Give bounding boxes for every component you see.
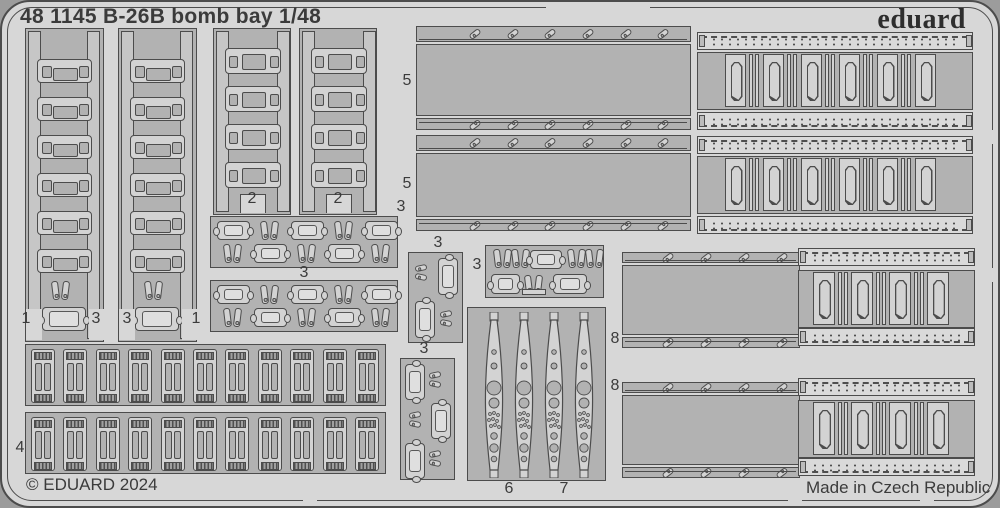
turnbuckle-part (290, 349, 314, 403)
hinge-strip-part (416, 118, 691, 130)
hook-hole-icon (660, 142, 665, 147)
knurl-band (99, 394, 117, 402)
bracket-inner (442, 265, 454, 288)
slot-cutout (336, 431, 343, 459)
rack-bracket-part (37, 249, 92, 273)
hinge-hook-icon (429, 380, 442, 388)
buckle-bracket-part (365, 285, 398, 304)
door-slat-part (889, 272, 911, 325)
bracket-inner (419, 308, 431, 331)
cutout (328, 130, 352, 146)
slat-bar-part (749, 158, 753, 211)
hook-hole-icon (346, 234, 350, 238)
strap-hook-icon (61, 281, 70, 301)
knurl-band (358, 352, 376, 360)
end-cap (966, 115, 972, 127)
buckle-bracket-part (438, 258, 458, 295)
cutout (315, 94, 324, 106)
strap-hook-icon (260, 221, 269, 241)
dash-line (701, 125, 968, 127)
door-slat-part (927, 272, 949, 325)
dash-line (802, 471, 970, 473)
hinge-hook-icon (661, 252, 674, 264)
strap-hook-icon (307, 308, 316, 328)
knurl-band (34, 352, 52, 360)
octagon-inner (770, 167, 779, 203)
rack-bracket-part (225, 124, 281, 150)
slot-cutout (359, 431, 366, 459)
buckle-bracket-part (42, 307, 86, 331)
knurl-band (164, 352, 182, 360)
knurl-band (326, 394, 344, 402)
cutout (229, 94, 238, 106)
hook-hole-icon (300, 257, 304, 261)
part-number-blade-7: 7 (560, 481, 569, 497)
buckle-bracket-part (530, 250, 562, 269)
knurl-band (164, 394, 182, 402)
octagon-cutout (857, 410, 869, 449)
shackle-strip-part-3 (210, 216, 398, 268)
dash-line (701, 140, 968, 142)
dash-line (701, 36, 968, 38)
knurl-band (261, 352, 279, 360)
edge-line (625, 390, 796, 391)
slot-cutout (238, 363, 245, 391)
cutout (135, 66, 145, 78)
hook-hole-icon (309, 321, 313, 325)
dash-line (802, 341, 970, 343)
hook-hole-icon (431, 382, 435, 386)
cutout (42, 256, 52, 268)
cutout (315, 132, 324, 144)
slot-cutout (174, 363, 181, 391)
frame-gap (546, 6, 650, 12)
knurl-band (66, 352, 84, 360)
made-in-text: Made in Czech Republic (806, 478, 990, 498)
rack-bracket-part (225, 162, 281, 188)
slot-cutout (368, 431, 375, 459)
strap-hook-icon (585, 249, 594, 269)
door-slat-part (877, 158, 898, 211)
octagon-inner (922, 167, 931, 203)
hook-hole-icon (417, 267, 421, 271)
door-slat-part (725, 158, 746, 211)
octagon-cutout (731, 166, 743, 205)
rivet-strip-part (697, 136, 973, 154)
cutout (172, 256, 182, 268)
strap-hook-icon (334, 221, 343, 241)
octagon-inner (808, 167, 817, 203)
edge-line (625, 341, 796, 342)
hook-hole-icon (585, 33, 590, 38)
knurl-band (164, 462, 182, 470)
slot-cutout (294, 431, 301, 459)
slot-cutout (336, 363, 343, 391)
part-number-plate-5-lower: 5 (403, 176, 412, 192)
hinge-hook-icon (440, 310, 453, 318)
slat-bar-part (882, 402, 886, 455)
cutout (42, 104, 52, 116)
turnbuckle-part (128, 349, 152, 403)
octagon-inner (732, 167, 741, 203)
hook-hole-icon (374, 321, 378, 325)
frame-gap (990, 268, 997, 282)
hook-hole-icon (235, 257, 239, 261)
turnbuckle-part (161, 349, 185, 403)
hinge-hook-icon (661, 467, 674, 479)
turnbuckle-part (258, 349, 282, 403)
buckle-bracket-part (405, 364, 425, 400)
hook-hole-icon (263, 298, 267, 302)
slat-bar-part (793, 54, 797, 107)
part-number-hook-3-left: 3 (92, 311, 101, 327)
hook-hole-icon (431, 374, 435, 378)
hinge-hook-icon (737, 252, 750, 264)
hook-hole-icon (337, 298, 341, 302)
buckle-bracket-part (328, 308, 361, 327)
end-cap (968, 381, 974, 393)
bulkhead-blade-part (511, 312, 537, 478)
turnbuckle-part (225, 417, 249, 471)
hinge-hook-icon (699, 252, 712, 264)
shackle-cluster-part-3 (408, 252, 463, 343)
slot-cutout (197, 431, 204, 459)
part-number-strip-3-upper: 3 (397, 199, 406, 215)
frame-gap (303, 497, 317, 503)
strap-hook-icon (270, 285, 279, 305)
slat-bar-part (907, 54, 911, 107)
cutout (146, 220, 171, 233)
rivet-dots (811, 383, 962, 392)
turnbuckle-part (225, 349, 249, 403)
octagon-inner (884, 63, 893, 99)
dash-line (802, 252, 970, 254)
end-cap (968, 461, 974, 473)
bracket-inner (142, 311, 172, 327)
hook-hole-icon (156, 294, 160, 298)
rack-bracket-part (311, 124, 367, 150)
cutout (172, 66, 182, 78)
door-slat-part (839, 158, 860, 211)
hook-hole-icon (431, 453, 435, 457)
bulkhead-blade-part (481, 312, 507, 478)
edge-line (419, 39, 687, 40)
cutout (270, 56, 279, 68)
slat-bar-part (876, 402, 880, 455)
door-slat-part (801, 158, 822, 211)
cutout (172, 142, 182, 154)
hinge-hook-icon (699, 382, 712, 394)
end-cap (800, 331, 806, 343)
rivet-strip-part (697, 112, 973, 130)
knurl-band (228, 394, 246, 402)
strap-hook-icon (595, 249, 604, 269)
cutout (270, 94, 279, 106)
cutout (53, 144, 78, 157)
octagon-cutout (895, 410, 907, 449)
slot-cutout (100, 363, 107, 391)
knurl-band (131, 352, 149, 360)
slot-cutout (229, 431, 236, 459)
door-slat-part (801, 54, 822, 107)
octagon-inner (934, 411, 943, 447)
octagon-cutout (933, 410, 945, 449)
slat-bar-part (825, 158, 829, 211)
slat-bar-part (838, 402, 842, 455)
hook-hole-icon (300, 321, 304, 325)
knurl-band (66, 394, 84, 402)
buckle-bracket-part (553, 274, 587, 294)
hook-hole-icon (309, 257, 313, 261)
hinge-hook-icon (737, 337, 750, 349)
door-slat-part (889, 402, 911, 455)
hook-hole-icon (431, 461, 435, 465)
cutout (53, 258, 78, 271)
slat-bar-part (755, 54, 759, 107)
cutout (135, 142, 145, 154)
knurl-band (326, 420, 344, 428)
part-number-clips-4: 4 (16, 440, 25, 456)
end-cap (968, 331, 974, 343)
slot-cutout (165, 363, 172, 391)
hook-hole-icon (147, 294, 151, 298)
bracket-inner (372, 289, 391, 300)
door-panel-blank (622, 265, 800, 335)
end-cap (699, 139, 705, 151)
door-slat-panel (697, 156, 973, 214)
rack-bracket-part (37, 97, 92, 121)
knurl-band (228, 462, 246, 470)
slat-bar-part (869, 54, 873, 107)
end-cap (968, 251, 974, 263)
part-number-rack-1-left: 1 (22, 311, 31, 327)
hinge-hook-icon (415, 273, 428, 281)
edge-line (419, 122, 687, 123)
hinge-hook-icon (429, 450, 442, 458)
cutout (229, 132, 238, 144)
part-number-door-8-upper: 8 (611, 331, 620, 347)
strap-hook-icon (381, 244, 390, 264)
end-cap (966, 139, 972, 151)
bracket-inner (298, 225, 317, 236)
hook-hole-icon (510, 142, 515, 147)
hook-hole-icon (472, 33, 477, 38)
bracket-inner (537, 254, 555, 265)
knurl-band (261, 394, 279, 402)
strap-hook-icon (297, 308, 306, 328)
rivet-strip-part (697, 216, 973, 234)
cutout (172, 218, 182, 230)
bulkhead-blade-part (571, 312, 597, 478)
octagon-inner (820, 411, 829, 447)
frame-gap (990, 130, 997, 144)
end-cap (699, 219, 705, 231)
octagon-inner (770, 63, 779, 99)
part-number-rack-2-right: 2 (334, 191, 343, 207)
slot-cutout (303, 431, 310, 459)
knurl-band (131, 394, 149, 402)
buckle-bracket-part (415, 301, 435, 338)
hinge-strip-part (622, 252, 800, 263)
part-number-rack-2-left: 2 (248, 191, 257, 207)
turnbuckle-part (96, 349, 120, 403)
hook-base-part (522, 289, 546, 295)
octagon-inner (922, 63, 931, 99)
hook-hole-icon (374, 257, 378, 261)
door-slat-part (813, 272, 835, 325)
rack-bracket-part (311, 48, 367, 74)
octagon-inner (934, 281, 943, 317)
strap-hook-icon (344, 285, 353, 305)
cutout (42, 218, 52, 230)
strap-hook-icon (51, 281, 60, 301)
hook-hole-icon (417, 275, 421, 279)
cutout (135, 180, 145, 192)
slot-cutout (206, 363, 213, 391)
slot-cutout (262, 431, 269, 459)
slot-cutout (141, 431, 148, 459)
dash-line (802, 382, 970, 384)
knurl-band (99, 462, 117, 470)
hook-hole-icon (623, 142, 628, 147)
knurl-band (326, 462, 344, 470)
knurl-band (358, 462, 376, 470)
cutout (242, 130, 266, 146)
rack-bracket-part (37, 211, 92, 235)
hinge-hook-icon (699, 337, 712, 349)
hook-hole-icon (442, 321, 446, 325)
knurl-band (293, 462, 311, 470)
hook-hole-icon (383, 321, 387, 325)
cutout (172, 104, 182, 116)
knurl-band (34, 462, 52, 470)
hook-hole-icon (496, 262, 500, 266)
dash-line (701, 229, 968, 231)
knurl-band (99, 420, 117, 428)
knurl-band (293, 352, 311, 360)
turnbuckle-part (63, 349, 87, 403)
slot-cutout (67, 363, 74, 391)
hook-hole-icon (660, 33, 665, 38)
buckle-bracket-part (291, 221, 324, 240)
rack-bracket-part (37, 59, 92, 83)
end-cap (800, 381, 806, 393)
knurl-band (196, 352, 214, 360)
turnbuckle-part (290, 417, 314, 471)
slat-bar-part (749, 54, 753, 107)
end-cap (800, 461, 806, 473)
cutout (42, 142, 52, 154)
frame-gap (788, 497, 802, 503)
slat-bar-part (914, 272, 918, 325)
turnbuckle-part (31, 349, 55, 403)
knurl-band (261, 462, 279, 470)
turnbuckle-part (161, 417, 185, 471)
cutout (328, 92, 352, 108)
cutout (356, 170, 365, 182)
knurl-band (358, 394, 376, 402)
part-number-door-8-lower: 8 (611, 378, 620, 394)
cutout (146, 68, 171, 81)
hook-hole-icon (547, 33, 552, 38)
cutout (146, 144, 171, 157)
slat-bar-part (920, 402, 924, 455)
cutout (315, 56, 324, 68)
slot-cutout (327, 363, 334, 391)
slot-cutout (141, 363, 148, 391)
strap-hook-icon (223, 244, 232, 264)
blade-svg (481, 312, 507, 478)
octagon-inner (858, 281, 867, 317)
bracket-inner (435, 410, 447, 432)
pe-fret-sheet: 551331223333346788 48 1145 B-26B bomb ba… (0, 0, 1000, 508)
strap-hook-icon (270, 221, 279, 241)
octagon-cutout (895, 280, 907, 319)
hook-hole-icon (588, 262, 592, 266)
knurl-band (131, 420, 149, 428)
hook-hole-icon (272, 234, 276, 238)
edge-line (419, 223, 687, 224)
slot-cutout (76, 431, 83, 459)
door-slat-part (877, 54, 898, 107)
copyright-text: © EDUARD 2024 (26, 475, 158, 495)
cutout (79, 142, 89, 154)
slot-cutout (294, 363, 301, 391)
strap-hook-icon (344, 221, 353, 241)
end-cap (966, 219, 972, 231)
hinge-hook-icon (661, 337, 674, 349)
cutout (229, 56, 238, 68)
cutout (53, 106, 78, 119)
octagon-cutout (845, 62, 857, 101)
hook-hole-icon (63, 294, 67, 298)
knurl-band (164, 420, 182, 428)
cutout (172, 180, 182, 192)
part-number-cluster-3-b: 3 (473, 257, 482, 273)
slot-cutout (368, 363, 375, 391)
octagon-cutout (883, 62, 895, 101)
turnbuckle-part (31, 417, 55, 471)
rivet-strip-part (798, 328, 975, 346)
knurl-band (196, 394, 214, 402)
hook-hole-icon (472, 142, 477, 147)
rack-bracket-part (130, 59, 185, 83)
slat-bar-part (793, 158, 797, 211)
strap-hook-icon (233, 308, 242, 328)
slot-cutout (359, 363, 366, 391)
cutout (328, 54, 352, 70)
door-slat-part (725, 54, 746, 107)
hook-hole-icon (623, 33, 628, 38)
strap-hook-icon (567, 249, 576, 269)
slat-bar-part (863, 158, 867, 211)
slat-bar-part (831, 54, 835, 107)
slot-cutout (67, 431, 74, 459)
hinge-hook-icon (429, 371, 442, 379)
slat-bar-part (920, 272, 924, 325)
cutout (242, 168, 266, 184)
octagon-cutout (731, 62, 743, 101)
rivet-dots (710, 37, 960, 46)
octagon-cutout (807, 62, 819, 101)
hook-hole-icon (585, 142, 590, 147)
hinge-hook-icon (775, 252, 788, 264)
slat-bar-part (831, 158, 835, 211)
shackle-strip-part-3 (210, 280, 398, 332)
knurl-band (66, 462, 84, 470)
strap-hook-icon (334, 285, 343, 305)
slot-cutout (109, 431, 116, 459)
